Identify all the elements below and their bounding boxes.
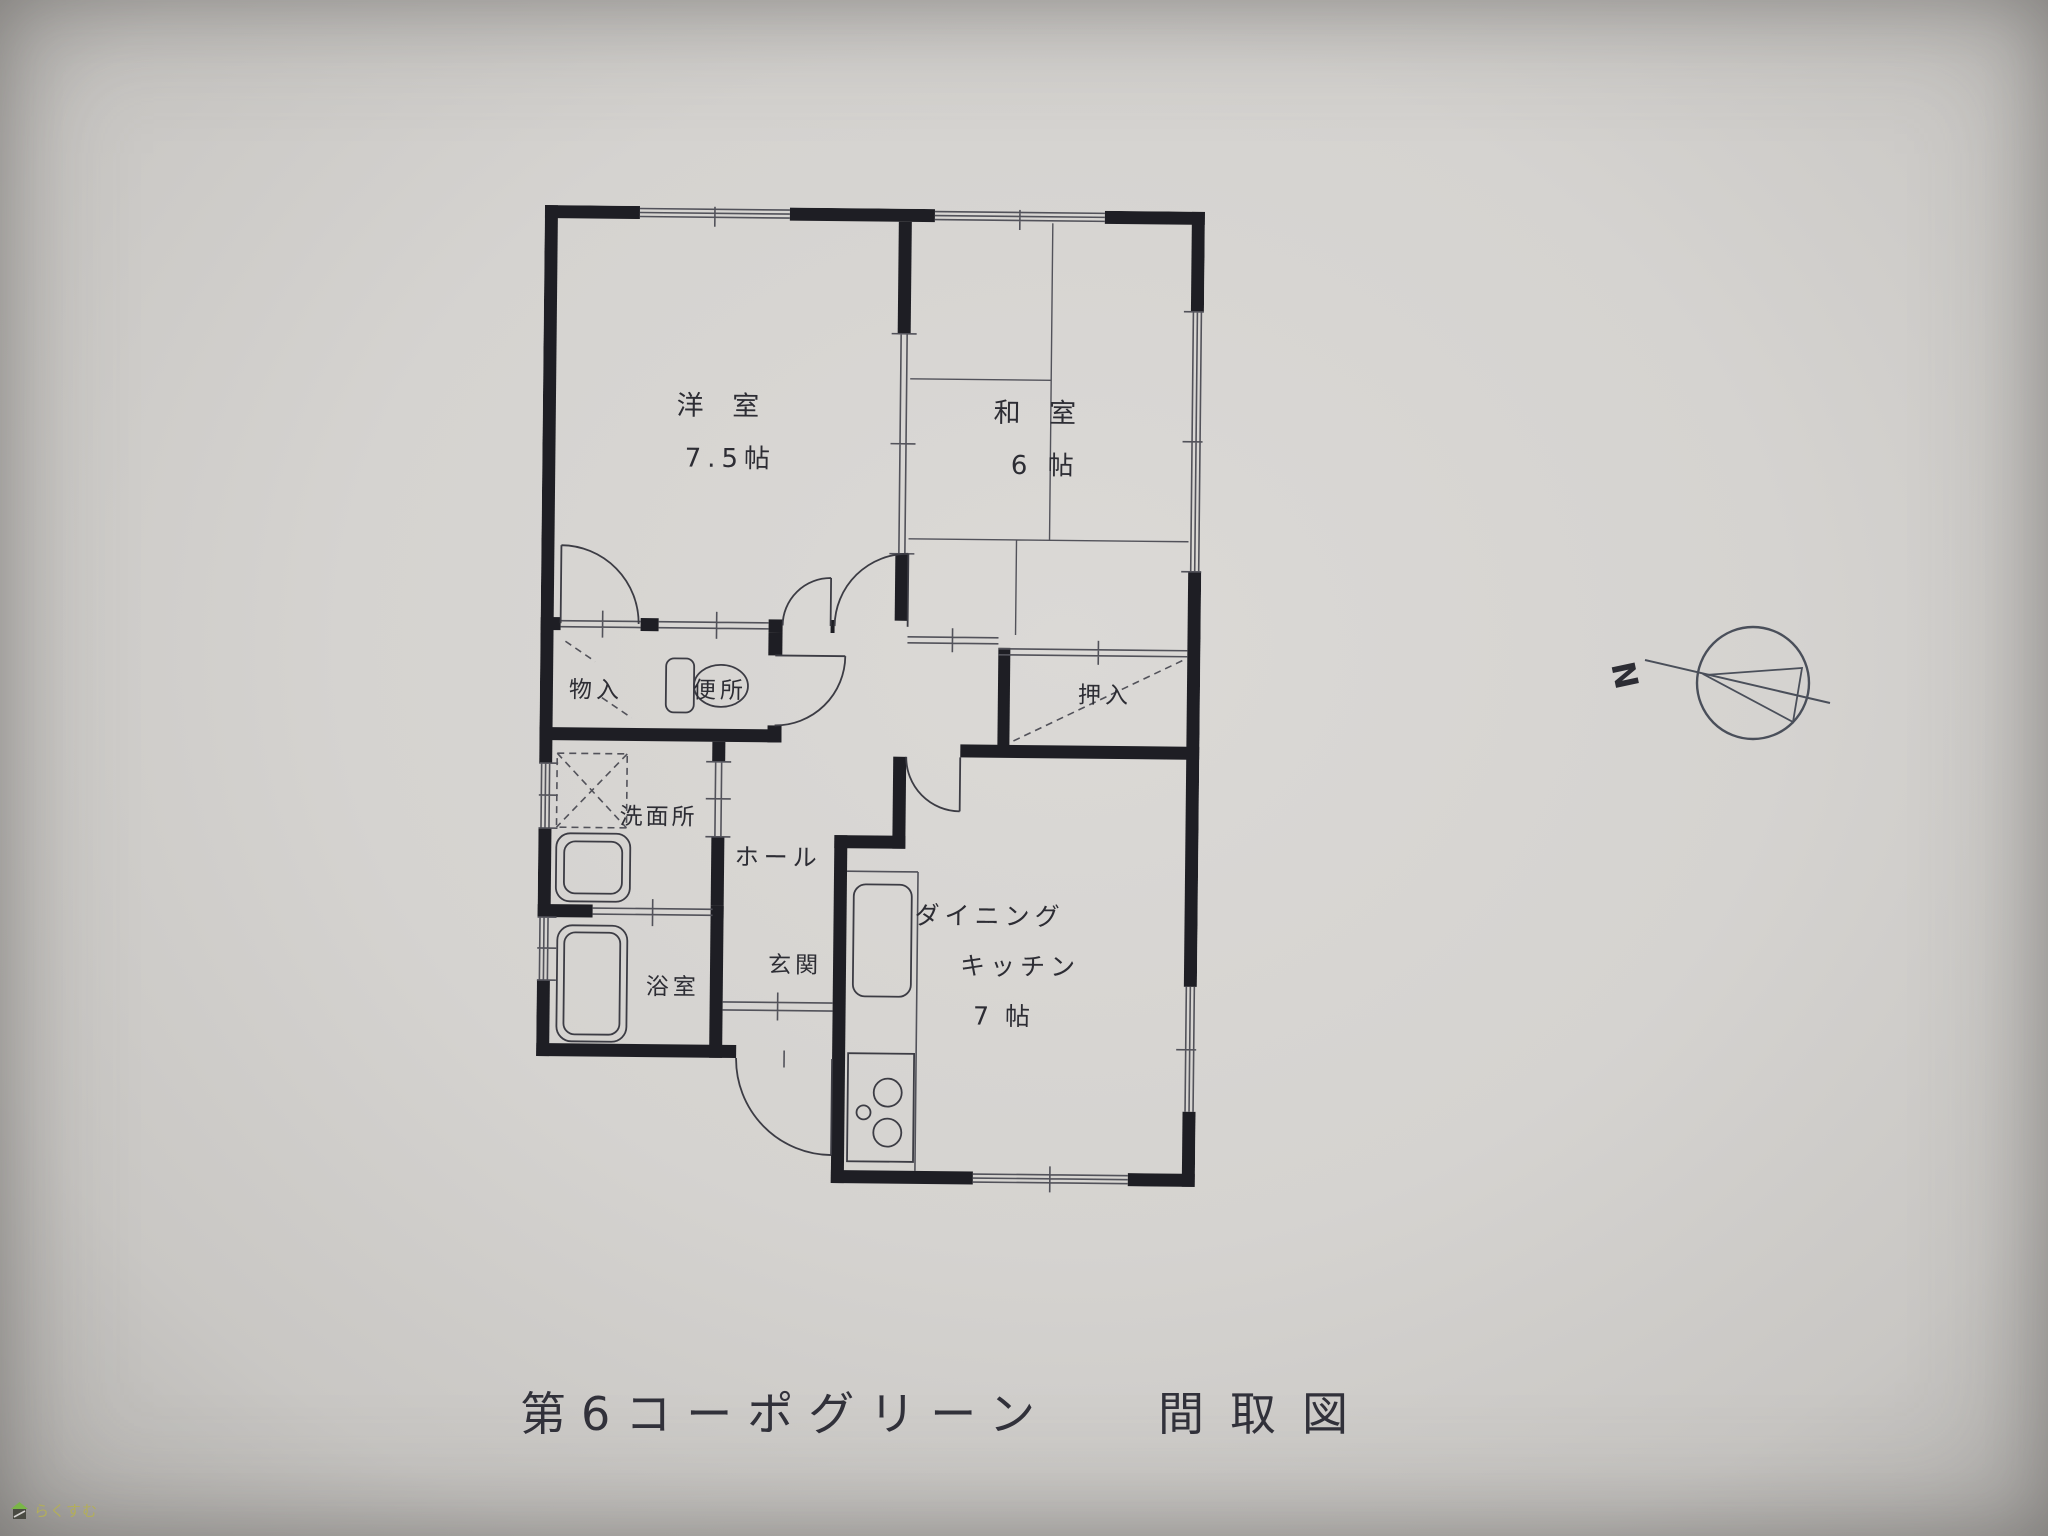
room-label: 和 室: [993, 398, 1086, 430]
room-label: 洋 室: [676, 390, 769, 422]
plan-title: 第6コーポグリーン 間取図: [520, 1378, 1374, 1444]
room-label-hall: ホール: [735, 843, 822, 872]
house-icon: [10, 1501, 29, 1520]
stove-icon: [847, 1053, 914, 1162]
room-japanese: 和 室 6 帖: [993, 398, 1086, 482]
kitchen-sink-icon: [853, 884, 912, 997]
room-label-closet: 押入: [1078, 683, 1132, 710]
document-type-label: 間取図: [1158, 1378, 1374, 1444]
bathtub-icon: [556, 925, 627, 1042]
dk-door-arc: [906, 757, 961, 812]
north-label: N: [1603, 658, 1646, 692]
storage-door-arc: [561, 545, 640, 624]
washbasin-icon: [556, 833, 631, 902]
toilet-door-arc: [775, 655, 846, 726]
room-label-line2: キッチン: [960, 951, 1080, 981]
room-label-entrance: 玄関: [768, 952, 822, 979]
room-size: 7 帖: [973, 1002, 1034, 1032]
building-name: 第6コーポグリーン: [520, 1378, 1050, 1444]
room-size: 6 帖: [1011, 451, 1080, 482]
room-label-bathroom: 浴室: [646, 974, 700, 1001]
entry-door-arc: [735, 1058, 832, 1155]
compass-icon: N: [1588, 608, 1868, 778]
compass-needle-line: [1645, 660, 1830, 703]
room-label-washroom: 洗面所: [619, 804, 697, 831]
room-label-toilet: 便所: [693, 678, 747, 705]
watermark-brand-text: らくすむ: [34, 1500, 98, 1521]
room-label-storage: 物入: [569, 677, 623, 704]
room-size: 7.5帖: [685, 443, 777, 474]
floorplan-photo-page: { "title": { "building": "第6コーポグリーン", "d…: [0, 0, 2048, 1536]
western-room-door-arc: [783, 578, 832, 627]
watermark: らくすむ: [10, 1500, 98, 1521]
room-western: 洋 室 7.5帖: [676, 390, 777, 474]
floor-plan: 洋 室 7.5帖 和 室 6 帖 ダイニング キッチン 7 帖 物入 便所 押入…: [535, 205, 1205, 1212]
room-dining-kitchen: ダイニング キッチン 7 帖: [913, 901, 1080, 1032]
room-label-line1: ダイニング: [914, 901, 1064, 932]
kitchen-counter-icon: [844, 871, 918, 1171]
north-arrow-icon: [1705, 668, 1802, 722]
